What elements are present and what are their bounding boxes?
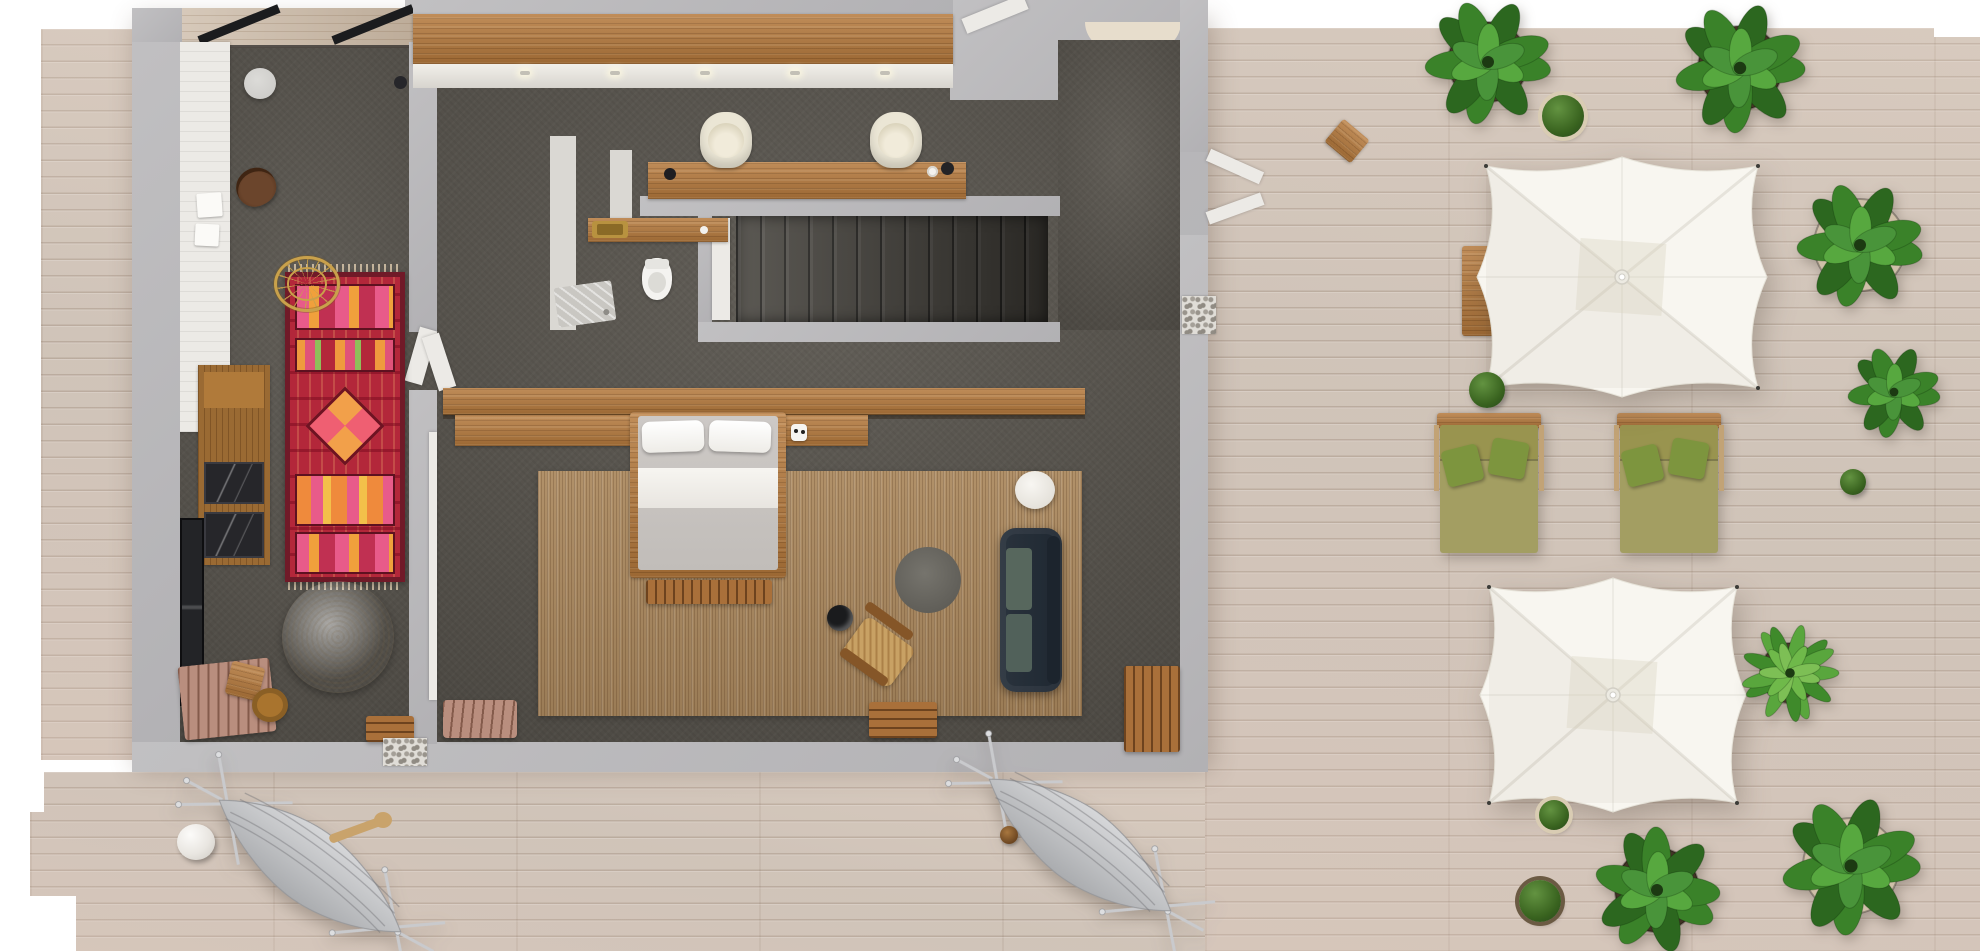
potted-plant-6 (1769, 784, 1933, 948)
wall-top-left-corner (132, 8, 182, 42)
desk (648, 162, 966, 199)
floor-plan-canvas (0, 0, 1980, 951)
toilet (642, 258, 672, 300)
lounger-rail (1614, 425, 1619, 491)
ceiling-light-4 (790, 71, 800, 75)
rosette-plant (1726, 609, 1854, 737)
bed-foot-bench (646, 580, 772, 604)
lounger-rail (1719, 425, 1724, 491)
wardrobe-top (413, 14, 953, 64)
desk-chair-2 (870, 112, 922, 168)
sun-lounger-1 (1432, 413, 1546, 556)
marble-ball-table (177, 824, 215, 860)
wall-stair-bottom (698, 322, 1060, 342)
lounger-rail (1434, 425, 1439, 491)
lit-wall-strip (413, 64, 953, 88)
lounger-pillow (1487, 437, 1530, 480)
potted-plant-2 (1662, 0, 1818, 146)
lounger-rail (1539, 425, 1544, 491)
bed-pillow-1 (641, 420, 704, 453)
runner-rug-panel-2 (295, 338, 395, 372)
wall-sconce (394, 76, 407, 89)
deck-notch-2 (30, 772, 44, 812)
pendant-lamp (244, 68, 276, 99)
wall-right-upper (1180, 0, 1208, 152)
towel-1 (196, 192, 223, 218)
deck-notch-1 (30, 896, 76, 951)
alarm-clock (791, 424, 807, 441)
sun-lounger-2 (1612, 413, 1726, 556)
deck-left-strip (41, 29, 135, 760)
shelf-left (455, 415, 640, 446)
console-shelf-marble-1 (204, 462, 264, 504)
desk-lamp (664, 168, 676, 180)
grey-round-rug (895, 547, 961, 613)
doormat-lounge (383, 738, 427, 766)
boxwood-ball-5 (1519, 880, 1561, 922)
vanity-sink-basin (597, 224, 623, 235)
runner-rug-panel-3 (295, 474, 395, 526)
potted-plant-3 (1784, 169, 1936, 321)
shower-tray (553, 280, 616, 328)
bench-bedroom-right (1124, 666, 1180, 752)
bath-wall-b (610, 150, 632, 218)
side-table-white (1015, 471, 1055, 509)
paddle-blade (374, 812, 392, 828)
lounger-pillow (1667, 437, 1710, 480)
vanity-faucet (700, 226, 708, 234)
console-shelf-marble-2 (204, 512, 264, 558)
bed-blanket (638, 468, 778, 508)
sofa-cushion-2 (1006, 614, 1032, 672)
boxwood-ball-4 (1539, 800, 1569, 830)
headboard-shelf (443, 388, 1085, 415)
sofa-cushion-1 (1006, 548, 1032, 610)
boxwood-ball-1 (1542, 95, 1584, 137)
wall-left (132, 8, 180, 760)
runner-rug-panel-4 (295, 532, 395, 574)
doormat-terrace (1182, 296, 1216, 334)
boxwood-ball-3 (1840, 469, 1866, 495)
bench-bedroom-center (869, 702, 937, 738)
desk-chair-1 (700, 112, 752, 168)
deck-notch-3 (1934, 28, 1980, 37)
stool-round (252, 688, 288, 722)
potted-plant-4 (1834, 332, 1954, 452)
bench-bedroom-left (443, 700, 517, 738)
bed-pillow-2 (708, 420, 771, 453)
ceiling-light-3 (700, 71, 710, 75)
desk-cup-white (927, 166, 938, 177)
wall-divider-face (429, 432, 437, 700)
wooden-bowl (1000, 826, 1018, 844)
gold-wire-decor (274, 256, 340, 312)
ceiling-light-5 (880, 71, 890, 75)
towel-2 (194, 223, 219, 246)
staircase (736, 216, 1048, 322)
ceiling-light-1 (520, 71, 530, 75)
side-table-black (827, 605, 853, 631)
round-jute-rug (282, 581, 394, 693)
console-shelf-wood (204, 372, 264, 408)
umbrella-1 (1470, 150, 1774, 404)
ceiling-light-2 (610, 71, 620, 75)
wall-under-desk (640, 196, 1060, 216)
corridor-floor (1058, 40, 1180, 330)
boxwood-ball-2 (1469, 372, 1505, 408)
sofa-back (1047, 536, 1060, 684)
potted-plant-5 (1581, 814, 1733, 951)
desk-cup-black (941, 162, 954, 175)
umbrella-2 (1473, 571, 1753, 819)
